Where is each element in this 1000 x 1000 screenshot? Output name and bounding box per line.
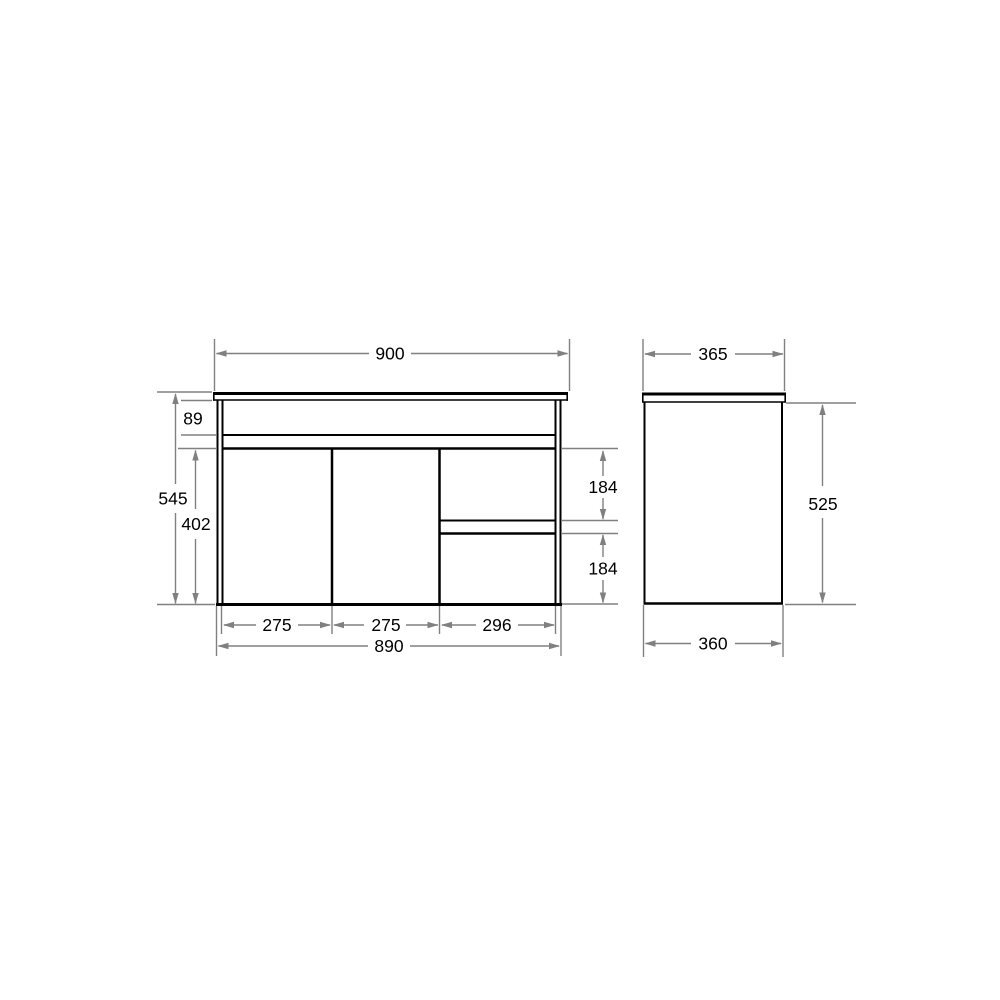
- dim-label-left-door-width: 275: [262, 615, 291, 635]
- arrow-right-icon: [558, 350, 569, 356]
- arrow-up-icon: [192, 450, 198, 461]
- dim-label-top-rail-height: 89: [183, 409, 202, 429]
- countertop: [213, 392, 568, 401]
- arrow-left-icon: [218, 643, 229, 649]
- front-view: 900 89 545 402: [157, 339, 618, 656]
- side-cabinet: [642, 393, 786, 604]
- dim-left-door-width: 275: [223, 615, 331, 635]
- cabinet-body-side: [644, 403, 784, 604]
- dim-label-middle-door-width: 275: [371, 615, 400, 635]
- side-view: 365 525 360: [642, 339, 856, 657]
- dim-drawer-bank-width: 296: [441, 615, 555, 635]
- dim-top-depth: 365: [643, 339, 785, 391]
- arrow-left-icon: [441, 622, 452, 628]
- technical-drawing: 900 89 545 402: [0, 0, 1000, 1000]
- top-rail: [222, 435, 556, 449]
- dim-door-height: 402: [178, 449, 216, 605]
- cabinet-body: [216, 401, 562, 606]
- drawing-canvas: 900 89 545 402: [0, 0, 1000, 1000]
- arrow-up-icon: [600, 450, 606, 461]
- dim-label-door-height: 402: [181, 514, 210, 534]
- front-cabinet: [213, 392, 568, 606]
- arrow-up-icon: [600, 534, 606, 545]
- dim-label-carcass-depth: 360: [698, 634, 727, 654]
- dim-carcass-width: 890: [218, 636, 561, 656]
- door-dividers: [332, 449, 440, 604]
- countertop-side: [642, 393, 786, 403]
- arrow-right-icon: [544, 622, 555, 628]
- dim-label-lower-drawer-height: 184: [588, 559, 617, 579]
- dim-upper-drawer-height: 184: [562, 449, 618, 521]
- arrow-right-icon: [773, 351, 784, 357]
- arrow-right-icon: [549, 643, 560, 649]
- arrow-left-icon: [223, 622, 234, 628]
- arrow-left-icon: [644, 351, 655, 357]
- dim-carcass-height: 525: [785, 403, 856, 605]
- arrow-right-icon: [771, 640, 782, 646]
- arrow-up-icon: [819, 404, 825, 415]
- dim-carcass-depth: 360: [644, 605, 784, 657]
- arrow-right-icon: [428, 622, 439, 628]
- dim-overall-width: 900: [215, 339, 570, 391]
- arrow-left-icon: [645, 640, 656, 646]
- dim-lower-drawer-height: 184: [562, 534, 618, 605]
- arrow-left-icon: [333, 622, 344, 628]
- dim-middle-door-width: 275: [333, 615, 439, 635]
- drawer-fronts: [440, 521, 555, 534]
- dim-label-overall-height: 545: [158, 489, 187, 509]
- arrow-down-icon: [172, 593, 178, 604]
- dim-label-top-depth: 365: [698, 344, 727, 364]
- arrow-down-icon: [819, 593, 825, 604]
- arrow-left-icon: [216, 350, 227, 356]
- dim-label-carcass-height: 525: [808, 494, 837, 514]
- arrow-down-icon: [192, 593, 198, 604]
- dim-label-carcass-width: 890: [374, 636, 403, 656]
- dim-label-upper-drawer-height: 184: [588, 477, 617, 497]
- arrow-up-icon: [172, 393, 178, 404]
- dim-top-rail-height: 89: [181, 401, 216, 436]
- arrow-down-icon: [600, 509, 606, 520]
- arrow-down-icon: [600, 593, 606, 604]
- dim-label-overall-width: 900: [375, 344, 404, 364]
- dim-label-drawer-bank-width: 296: [482, 615, 511, 635]
- arrow-right-icon: [320, 622, 331, 628]
